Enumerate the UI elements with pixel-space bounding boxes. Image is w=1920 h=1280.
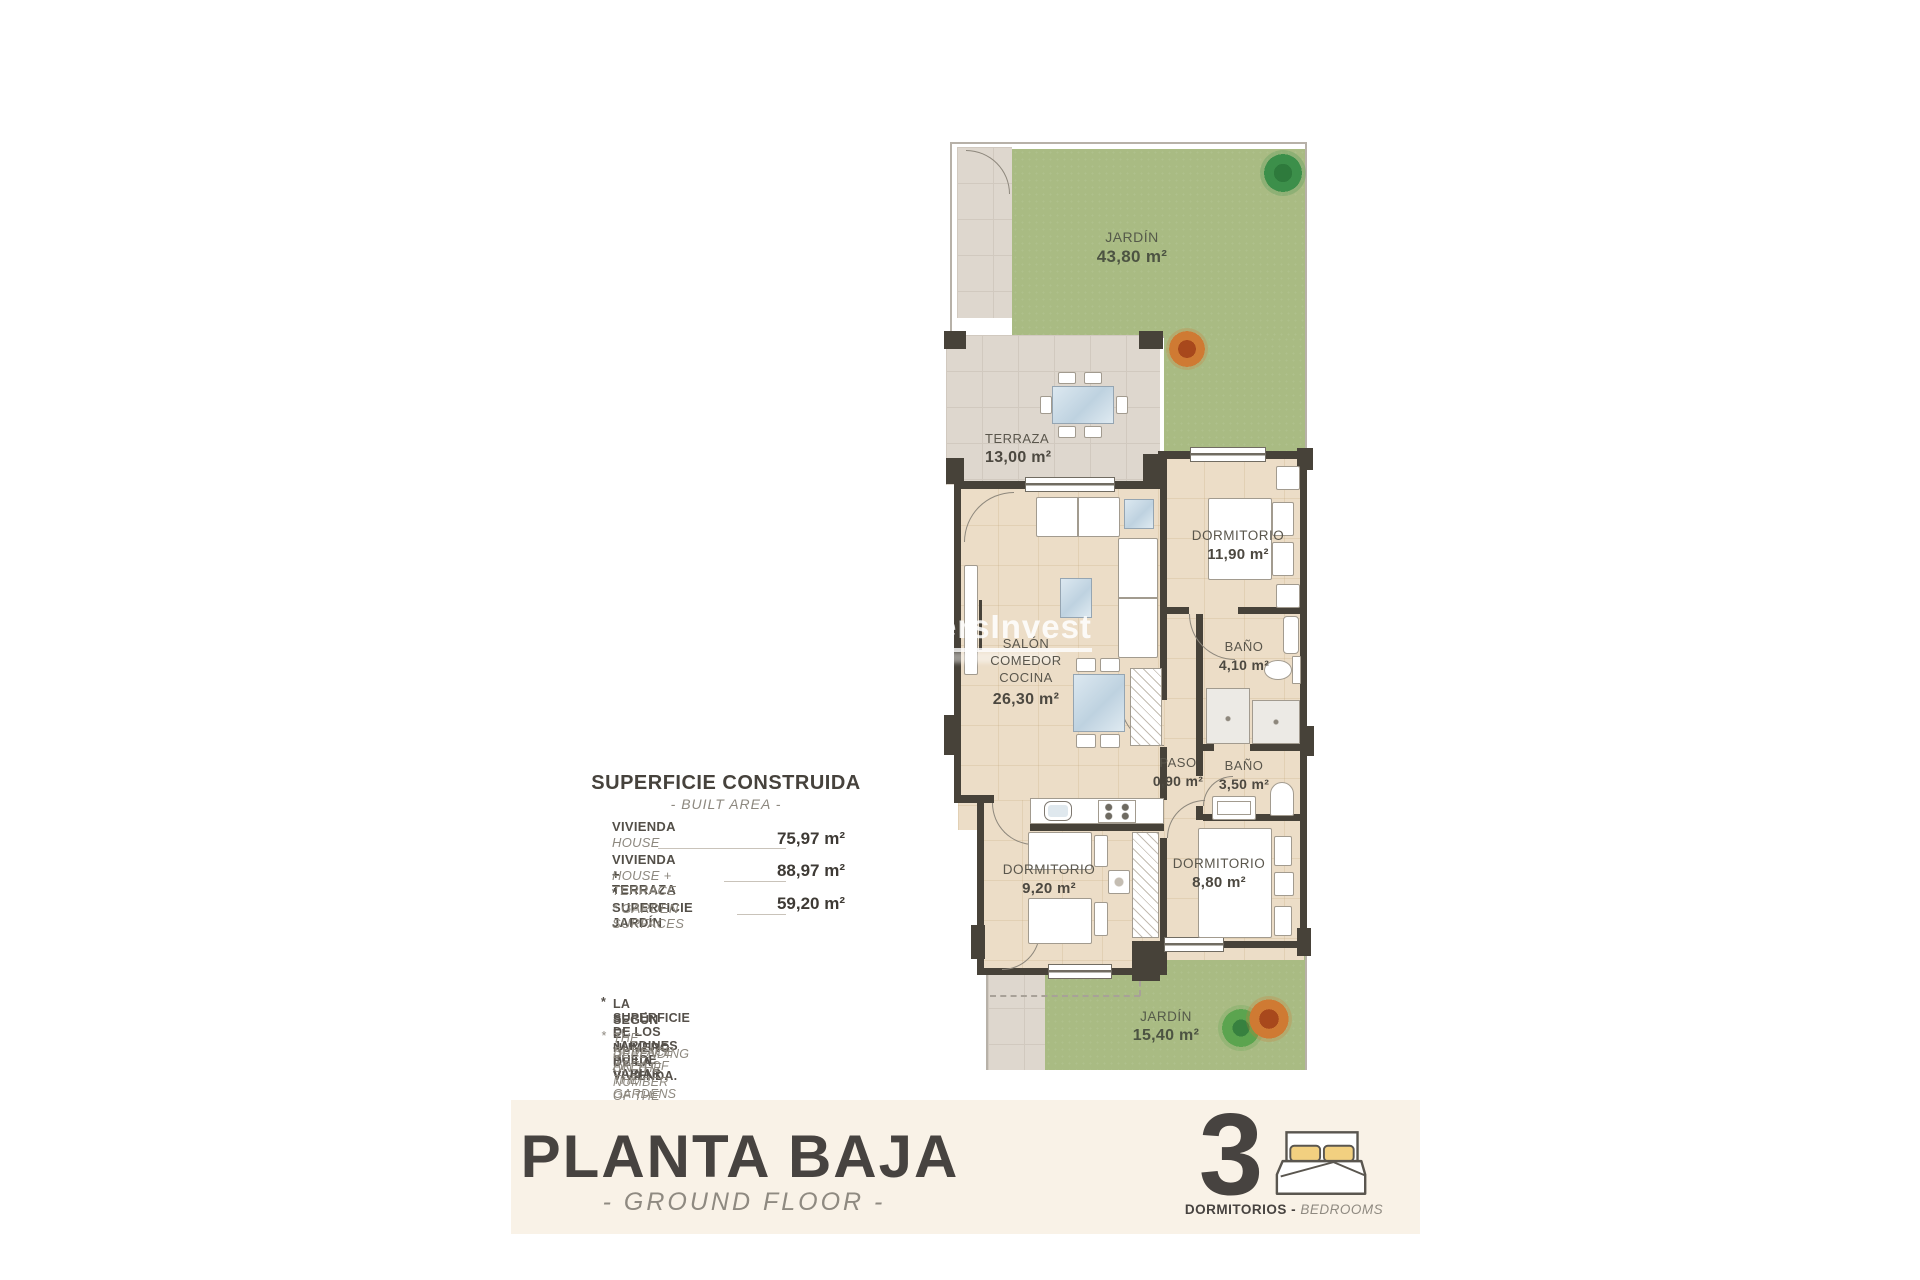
bed-single (1028, 898, 1092, 944)
nightstand (1276, 466, 1300, 490)
wall-block (944, 715, 956, 755)
wall-block (944, 331, 966, 349)
bath-sink (1283, 616, 1299, 654)
shower (1252, 700, 1300, 744)
room-label-salon: SALÓN COMEDOR COCINA 26,30 m² (966, 636, 1086, 710)
summary-row-value: 75,97 m² (755, 829, 845, 849)
bush-icon (1246, 996, 1292, 1042)
leader-line (724, 881, 786, 882)
footer-band: PLANTA BAJA - GROUND FLOOR - 3 DORMITORI… (511, 1100, 1420, 1234)
nightstand (1276, 584, 1300, 608)
room-label-dormitorio-1: DORMITORIO 11,90 m² (1178, 527, 1298, 564)
summary-row-value: 88,97 m² (755, 861, 845, 881)
wall (1167, 607, 1189, 614)
wall (1160, 458, 1167, 700)
footnote-marker: * (601, 995, 606, 1009)
room-label-jardin-bottom: JARDÍN 15,40 m² (1106, 1008, 1226, 1046)
floor-subtitle: - GROUND FLOOR - (524, 1188, 964, 1217)
toilet-tank (1292, 656, 1301, 684)
bedrooms-label-en: BEDROOMS (1300, 1202, 1383, 1217)
room-label-jardin-top: JARDÍN 43,80 m² (1072, 228, 1192, 268)
dining-chair (1100, 658, 1120, 672)
kitchen-sink (1044, 801, 1072, 821)
bedrooms-label-es: DORMITORIOS - (1185, 1202, 1296, 1217)
bedrooms-label: DORMITORIOS - BEDROOMS (1184, 1202, 1384, 1217)
wall (1030, 823, 1164, 831)
summary-row-label-es: VIVIENDA (612, 819, 676, 834)
summary-row-label-en: HOUSE (612, 835, 660, 850)
dining-chair (1076, 734, 1096, 748)
window (1025, 477, 1115, 492)
garden-dashed-limit (990, 995, 1140, 997)
bedrooms-count: 3 (1196, 1096, 1266, 1212)
room-label-bano-1: BAÑO 4,10 m² (1204, 639, 1284, 674)
wall-block (971, 925, 985, 959)
floor-title: PLANTA BAJA (520, 1122, 960, 1191)
wall (1300, 451, 1307, 948)
wall (1250, 744, 1307, 751)
wall (1238, 607, 1307, 614)
leader-line (737, 914, 786, 915)
wall-block (1132, 941, 1160, 981)
terrace-dining-table (1052, 386, 1114, 424)
room-label-dormitorio-3: DORMITORIO 8,80 m² (1159, 855, 1279, 892)
terrace-chair (1040, 396, 1052, 414)
tree-icon (1260, 150, 1306, 196)
floor-plan: ersInvest JARDÍN 43,80 m² TERRAZA 13,00 … (0, 0, 1920, 1280)
side-table (1124, 499, 1154, 529)
room-label-dormitorio-2: DORMITORIO 9,20 m² (989, 861, 1109, 898)
bath-vanity (1212, 796, 1256, 820)
bed-pillow (1094, 902, 1108, 936)
window (1048, 964, 1112, 979)
wall-block (946, 458, 964, 484)
terrace-chair (1084, 372, 1102, 384)
closet (1132, 832, 1159, 938)
shower (1206, 688, 1250, 744)
room-label-terraza: TERRAZA 13,00 m² (985, 431, 1105, 469)
room-label-bano-2: BAÑO 3,50 m² (1202, 758, 1286, 793)
wall-block (1297, 928, 1311, 956)
summary-row-value: 59,20 m² (755, 894, 845, 914)
chaise-sofa (1118, 538, 1158, 658)
wall-block (1143, 454, 1162, 482)
bed-pillow (1274, 906, 1292, 936)
footnote-marker: * (601, 1029, 606, 1043)
wall-block (1139, 331, 1163, 349)
bush-icon (1166, 328, 1208, 370)
nightstand (1108, 870, 1130, 894)
window (1190, 447, 1266, 462)
window (1164, 937, 1224, 952)
summary-subtitle: - BUILT AREA - (566, 796, 886, 812)
summary-row-label-en: * GARDEN SURFACES (612, 901, 684, 931)
terrace-chair (1058, 372, 1076, 384)
path-bottom (988, 972, 1045, 1070)
dining-chair (1100, 734, 1120, 748)
stove (1098, 800, 1136, 823)
bed-icon (1274, 1130, 1370, 1198)
closet (1130, 668, 1162, 746)
sofa (1036, 497, 1120, 537)
wall-block (1300, 726, 1314, 756)
summary-title: SUPERFICIE CONSTRUIDA (566, 772, 886, 795)
terrace-chair (1116, 396, 1128, 414)
wall (954, 795, 994, 803)
